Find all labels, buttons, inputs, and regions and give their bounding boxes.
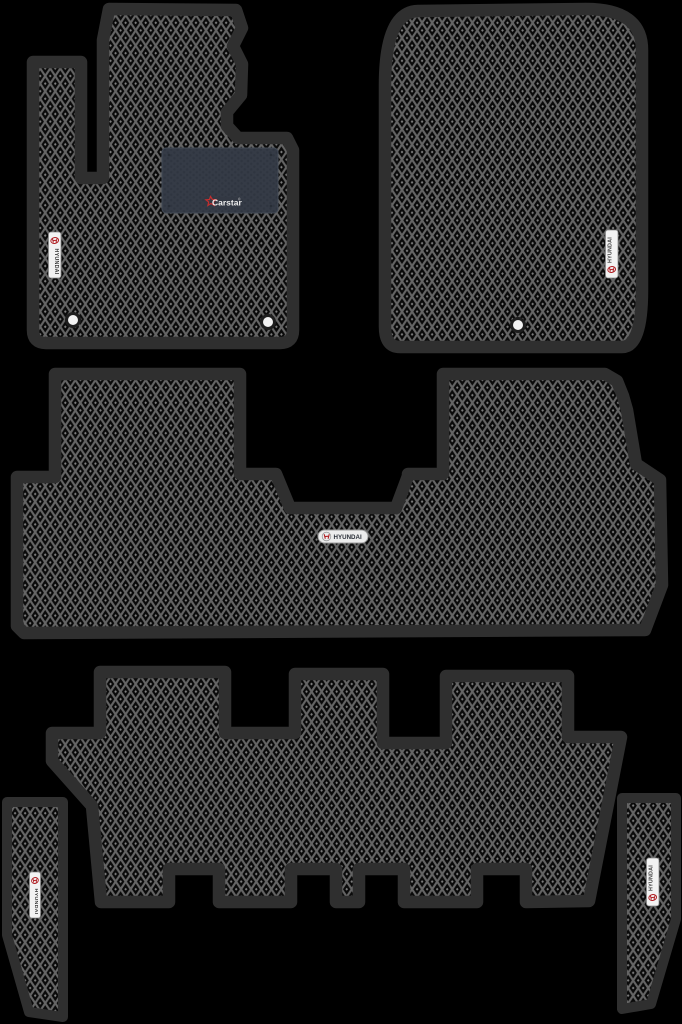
svg-text:HYUNDAI: HYUNDAI [334, 534, 362, 541]
svg-text:®: ® [238, 198, 241, 202]
